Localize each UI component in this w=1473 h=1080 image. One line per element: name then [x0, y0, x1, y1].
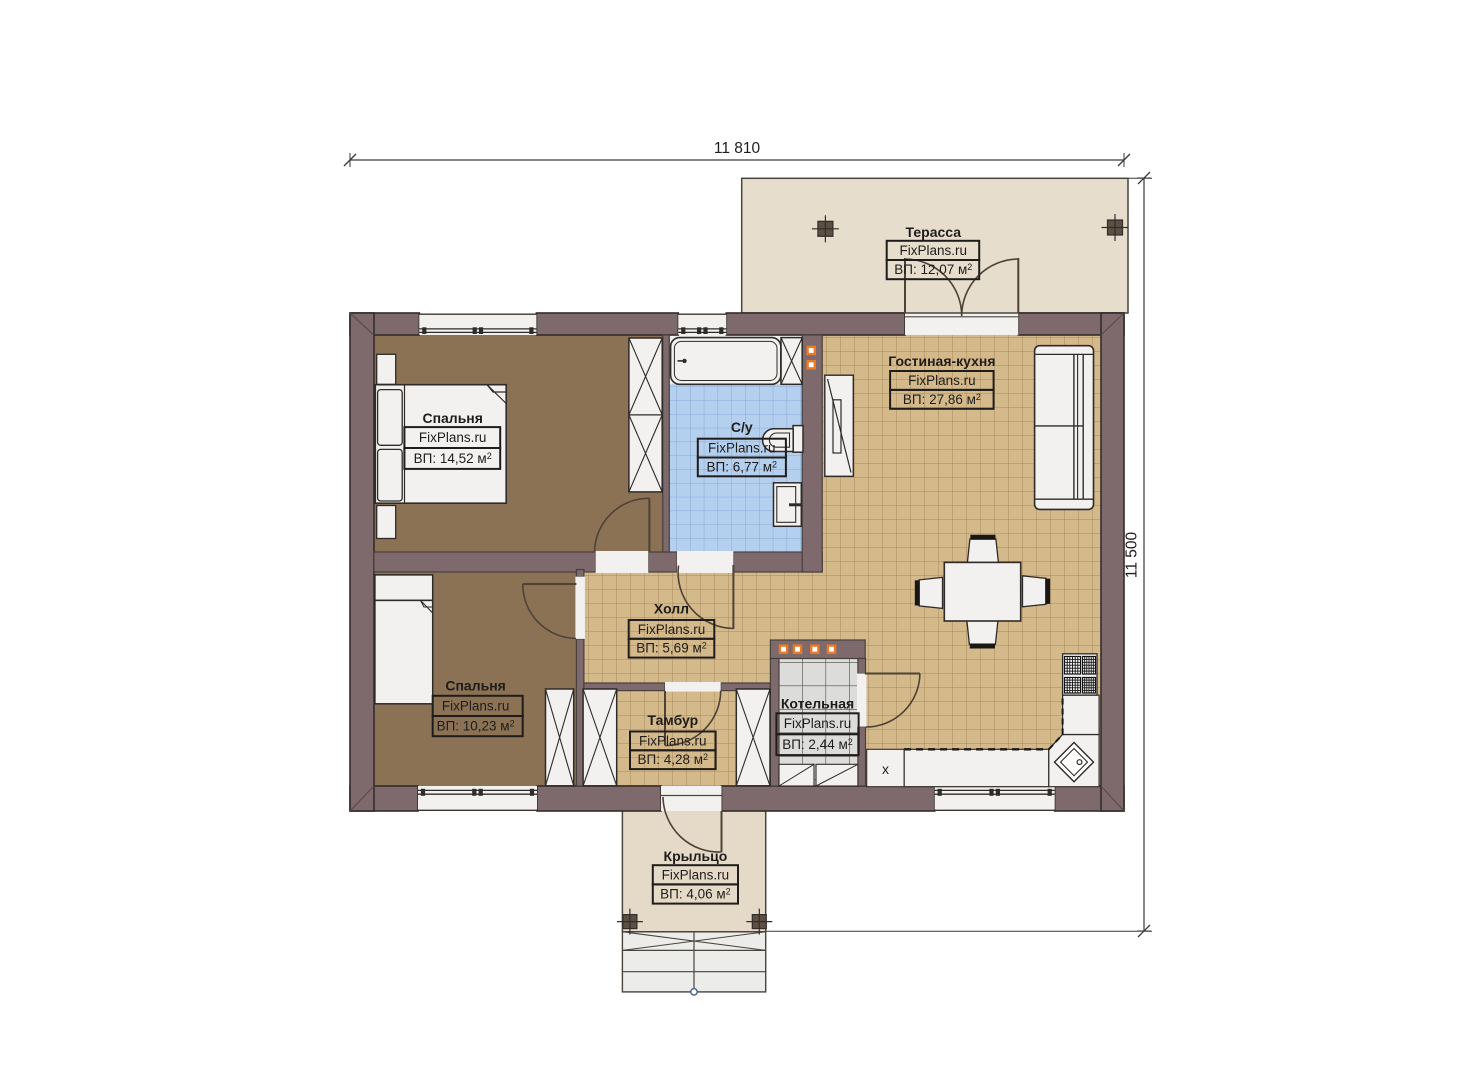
svg-text:FixPlans.ru: FixPlans.ru	[908, 373, 976, 388]
svg-text:FixPlans.ru: FixPlans.ru	[419, 430, 487, 445]
svg-text:11 500: 11 500	[1124, 531, 1141, 578]
svg-text:FixPlans.ru: FixPlans.ru	[662, 867, 730, 882]
svg-text:С/у: С/у	[731, 419, 753, 435]
svg-text:Холл: Холл	[654, 601, 689, 617]
svg-text:x: x	[882, 761, 889, 777]
svg-text:Спальня: Спальня	[422, 410, 482, 426]
svg-text:ВП: 12,07 м2: ВП: 12,07 м2	[894, 262, 972, 277]
svg-text:ВП: 14,52 м2: ВП: 14,52 м2	[414, 451, 492, 466]
svg-text:ВП: 2,44 м2: ВП: 2,44 м2	[782, 737, 853, 752]
svg-text:Терасса: Терасса	[906, 224, 962, 240]
svg-text:Гостиная-кухня: Гостиная-кухня	[888, 353, 995, 369]
svg-text:11 810: 11 810	[714, 140, 761, 157]
svg-text:Тамбур: Тамбур	[647, 712, 698, 728]
svg-text:ВП: 27,86 м2: ВП: 27,86 м2	[903, 392, 981, 407]
svg-text:FixPlans.ru: FixPlans.ru	[442, 698, 510, 713]
svg-text:FixPlans.ru: FixPlans.ru	[708, 441, 776, 456]
svg-text:Котельная: Котельная	[781, 696, 854, 712]
svg-text:Спальня: Спальня	[445, 678, 505, 694]
svg-text:FixPlans.ru: FixPlans.ru	[639, 733, 707, 748]
svg-text:ВП: 6,77 м2: ВП: 6,77 м2	[707, 459, 778, 474]
svg-text:ВП: 4,06 м2: ВП: 4,06 м2	[660, 887, 731, 902]
svg-text:ВП: 10,23 м2: ВП: 10,23 м2	[437, 719, 515, 734]
svg-text:ВП: 5,69 м2: ВП: 5,69 м2	[636, 641, 707, 656]
svg-text:FixPlans.ru: FixPlans.ru	[638, 622, 706, 637]
svg-text:ВП: 4,28 м2: ВП: 4,28 м2	[638, 752, 709, 767]
svg-text:FixPlans.ru: FixPlans.ru	[784, 716, 852, 731]
svg-text:Крыльцо: Крыльцо	[664, 848, 728, 864]
svg-text:FixPlans.ru: FixPlans.ru	[900, 243, 968, 258]
